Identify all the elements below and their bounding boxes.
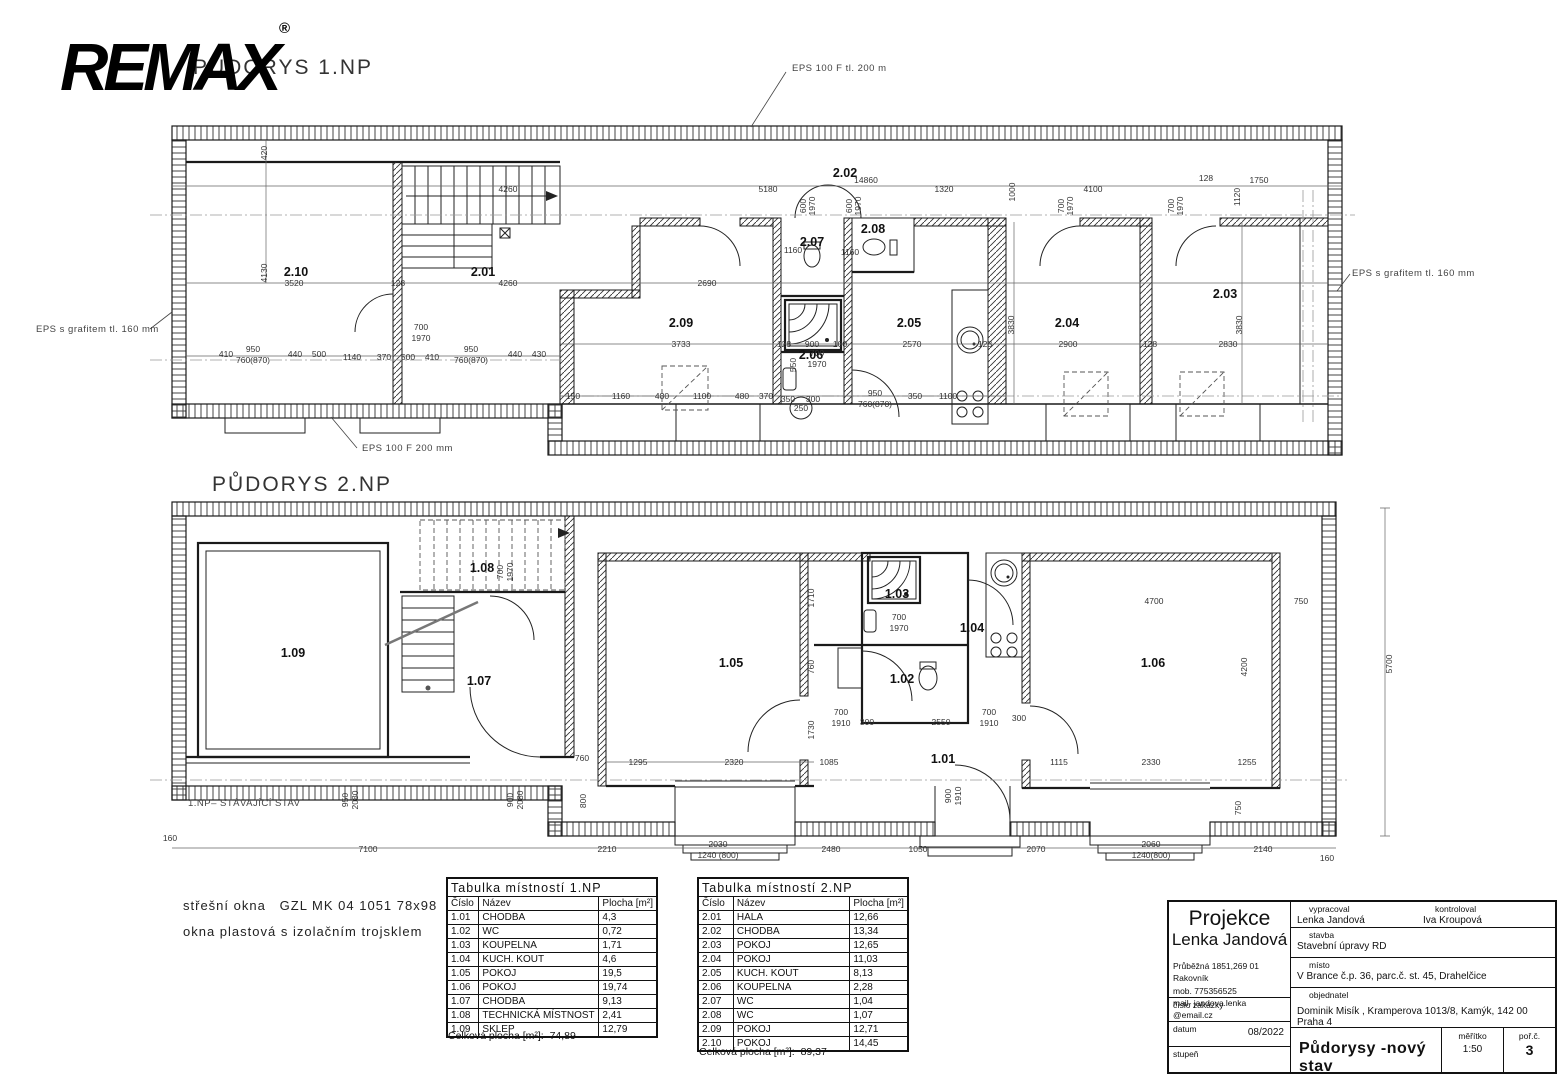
room-label-2-09: 2.09 (669, 316, 693, 330)
checked-by: Iva Kroupová (1423, 914, 1549, 926)
table1-title: Tabulka místností 1.NP (447, 878, 657, 897)
dimension-label: 700 (892, 612, 906, 622)
title-block-company: Projekce Lenka Jandová Průběžná 1851,269… (1169, 902, 1291, 1072)
col-header-name: Název (479, 897, 599, 911)
dimension-label: 1100 (693, 391, 712, 401)
dimension-label: 1970 (808, 359, 827, 369)
table-row: 2.04POKOJ11,03 (698, 953, 908, 967)
client-value: Dominik Misík , Kramperova 1013/8, Kamýk… (1297, 1000, 1549, 1028)
dimension-label: 2140 (1254, 844, 1273, 854)
callout-eps-left: EPS s grafitem tl. 160 mm (36, 324, 159, 335)
dimension-label: 1750 (1250, 175, 1269, 185)
table-row: 1.03KOUPELNA1,71 (447, 939, 657, 953)
dimension-label: 750 (1233, 801, 1243, 815)
dimension-label: 500 (401, 352, 415, 362)
dimension-label: 2480 (822, 844, 841, 854)
dimension-label: 760 (806, 660, 816, 674)
company-address: Průběžná 1851,269 01 Rakovník (1173, 960, 1286, 985)
dimension-label: 160 (163, 833, 177, 843)
dimension-label: 1160 (841, 247, 860, 257)
dimension-label: 1910 (953, 786, 963, 805)
prepared-label: vypracoval (1297, 904, 1423, 914)
room-label-2-04: 2.04 (1055, 316, 1079, 330)
table-row: 1.08TECHNICKÁ MÍSTNOST2,41 (447, 1009, 657, 1023)
sheet-number-value: 3 (1504, 1041, 1555, 1058)
scale-value: 1:50 (1442, 1041, 1503, 1055)
dimension-label: 760(870) (454, 355, 488, 365)
dimension-label: 1970 (1065, 196, 1075, 215)
plan2-title: PŮDORYS 2.NP (212, 473, 392, 497)
room-label-1-07: 1.07 (467, 674, 491, 688)
dimension-label: 2690 (698, 278, 717, 288)
dimension-label: 370 (377, 352, 391, 362)
table-row: 2.06KOUPELNA2,28 (698, 981, 908, 995)
floor-plan-bottom: 1.091.081.071.051.031.021.041.011.061.NP… (150, 502, 1394, 863)
dimension-label: 1115 (1050, 757, 1068, 767)
interior-walls (186, 162, 1328, 441)
sheet-number-cell: poř.č. 3 (1503, 1028, 1555, 1072)
dimension-label: 4200 (1239, 657, 1249, 676)
dimension-label: 2570 (903, 339, 922, 349)
col-header-number: Číslo (447, 897, 479, 911)
grade-row: stupeň (1169, 1046, 1290, 1072)
room-label-1-03: 1.03 (885, 587, 909, 601)
plan1-labels: 2.102.012.022.092.072.082.052.062.042.03… (36, 63, 1475, 454)
dimension-label: 1710 (806, 588, 816, 607)
dimension-label: 1140 (343, 352, 362, 362)
drawing-sheet: PŮDORYS 1.NP REMAX® PŮDORYS 2.NP .w2{str… (0, 0, 1568, 1080)
company-phone: mob. 775356525 (1173, 985, 1286, 997)
note-line1: střešní okna GZL MK 04 1051 78x98 (183, 898, 437, 913)
dimension-label: 1120 (1232, 188, 1242, 207)
room-label-2-05: 2.05 (897, 316, 921, 330)
company-name-line1: Projekce (1169, 907, 1290, 930)
company-contact: Průběžná 1851,269 01 Rakovník mob. 77535… (1169, 957, 1290, 997)
client-row: objednatel Dominik Misík , Kramperova 10… (1291, 988, 1555, 1028)
dimension-label: 900 (505, 793, 515, 807)
order-number-row: číslo zakázky (1169, 997, 1290, 1021)
dimension-label: 760(870) (236, 355, 270, 365)
date-row: datum08/2022 (1169, 1021, 1290, 1046)
dimension-label: 128 (777, 339, 791, 349)
dimension-label: 3830 (1234, 315, 1244, 334)
dimension-label: 350 (908, 391, 922, 401)
dimension-label: 1970 (853, 196, 863, 215)
place-value: V Brance č.p. 36, parc.č. st. 45, Drahel… (1297, 970, 1549, 982)
dimension-label: 1910 (832, 718, 851, 728)
dimension-label: 700 (414, 322, 428, 332)
registered-mark-icon: ® (279, 20, 290, 37)
window-notes: střešní okna GZL MK 04 1051 78x98okna pl… (183, 893, 437, 945)
building-value: Stavební úpravy RD (1297, 940, 1549, 952)
dimension-label: 4260 (499, 278, 518, 288)
outer-walls (172, 126, 1342, 455)
dimension-label: 480 (655, 391, 669, 401)
table1-total: Celková plocha [m²]: 74,89 (448, 1030, 576, 1042)
dimension-label: 128 (1199, 173, 1213, 183)
remax-logo: REMAX® (60, 34, 288, 101)
drawing-title: Půdorysy -nový stav (1291, 1028, 1441, 1072)
dimension-label: 3520 (285, 278, 304, 288)
dimension-label: 1240(800) (1132, 850, 1171, 860)
dimension-label: 1085 (820, 757, 839, 767)
dimension-label: 1970 (505, 562, 515, 581)
dimension-label: 2320 (725, 757, 744, 767)
dimension-label: 350 (781, 394, 795, 404)
table-row: 1.01CHODBA4,3 (447, 911, 657, 925)
room-label-1-09: 1.09 (281, 646, 305, 660)
table-row: 1.07CHODBA9,13 (447, 995, 657, 1009)
dimension-label: 3830 (1006, 315, 1016, 334)
table-row: 2.05KUCH. KOUT8,13 (698, 967, 908, 981)
dimension-label: 420 (259, 146, 269, 160)
dimension-label: 700 (810, 348, 824, 358)
dimension-label: 2060 (1142, 839, 1161, 849)
room-label-1-06: 1.06 (1141, 656, 1165, 670)
col-header-area: Plocha [m²] (599, 897, 657, 911)
dimension-label: 1100 (939, 391, 958, 401)
table-row: 2.03POKOJ12,65 (698, 939, 908, 953)
dimension-label: 1730 (806, 720, 816, 739)
dimension-label: 2550 (932, 717, 951, 727)
dimension-label: 1255 (1238, 757, 1257, 767)
dimension-label: 300 (860, 717, 874, 727)
company-name-line2: Lenka Jandová (1169, 930, 1290, 950)
staircase-top-plan (402, 166, 560, 268)
table2-title: Tabulka místností 2.NP (698, 878, 908, 897)
building-row: stavba Stavební úpravy RD (1291, 928, 1555, 958)
staircase-bottom-plan (385, 520, 570, 692)
drawing-title-row: Půdorysy -nový stav měřítko 1:50 poř.č. … (1291, 1028, 1555, 1072)
scale-cell: měřítko 1:50 (1441, 1028, 1503, 1072)
dimension-label: 1910 (980, 718, 999, 728)
dimension-label: 1970 (412, 333, 431, 343)
dimension-label: 370 (759, 391, 773, 401)
table-row: 2.07WC1,04 (698, 995, 908, 1009)
date-value: 08/2022 (1248, 1027, 1284, 1038)
dimension-label: 14860 (854, 175, 878, 185)
title-block-details: vypracoval Lenka Jandová kontroloval Iva… (1291, 902, 1555, 1072)
room-label-2-03: 2.03 (1213, 287, 1237, 301)
dimension-label: 2070 (1027, 844, 1046, 854)
dimension-label: 760(870) (858, 399, 892, 409)
dimension-label: 950 (464, 344, 478, 354)
dimension-label: 250 (794, 403, 808, 413)
dimension-label: 3733 (672, 339, 691, 349)
dimension-label: 160 (1320, 853, 1334, 863)
plan2-labels: 1.091.081.071.051.031.021.041.011.061.NP… (163, 561, 1394, 863)
dimension-label: 2830 (1219, 339, 1238, 349)
dimension-label: 300 (1012, 713, 1026, 723)
dimension-label: 1160 (612, 391, 631, 401)
room-label-2-01: 2.01 (471, 265, 495, 279)
dimension-label: 800 (578, 794, 588, 808)
col-header-name: Název (733, 897, 849, 911)
toilet-icon (863, 239, 885, 255)
table-row: 1.04KUCH. KOUT4,6 (447, 953, 657, 967)
dimension-label: 410 (219, 349, 233, 359)
dimension-label: 4130 (259, 263, 269, 282)
sink-icon (864, 610, 876, 632)
porch-step (225, 418, 305, 433)
porch-step (360, 418, 440, 433)
dimension-label: 1050 (909, 844, 928, 854)
room-label-1-05: 1.05 (719, 656, 743, 670)
table-row: 2.01HALA12,66 (698, 911, 908, 925)
dimension-label: 2030 (709, 839, 728, 849)
room-table-2np: Tabulka místností 2.NP Číslo Název Ploch… (697, 877, 909, 1052)
dimension-label: 480 (735, 391, 749, 401)
dimension-label: 2080 (350, 790, 360, 809)
dimension-label: 1970 (890, 623, 909, 633)
dimension-label: 1160 (784, 245, 803, 255)
dimension-label: 1970 (1175, 196, 1185, 215)
prepared-by: Lenka Jandová (1297, 914, 1423, 926)
dimension-label: 4700 (1145, 596, 1164, 606)
stove-icon (991, 633, 1001, 643)
room-label-2-08: 2.08 (861, 222, 885, 236)
dimension-label: 700 (834, 707, 848, 717)
door-arcs (470, 580, 1078, 820)
dimension-label: 900 (943, 789, 953, 803)
dimension-label: 5700 (1384, 654, 1394, 673)
dimension-label: 430 (532, 349, 546, 359)
room-label-2-10: 2.10 (284, 265, 308, 279)
table-row: 2.08WC1,07 (698, 1009, 908, 1023)
dimension-label: 300 (806, 394, 820, 404)
table-row: 1.05POKOJ19,5 (447, 967, 657, 981)
floor-plan-top: 2.102.012.022.092.072.082.052.062.042.03… (36, 63, 1475, 455)
dimension-label: 1320 (935, 184, 954, 194)
dimension-label: 1000 (1007, 182, 1017, 201)
dimension-label: 5180 (759, 184, 778, 194)
dimension-label: 700 (982, 707, 996, 717)
table-row: 2.02CHODBA13,34 (698, 925, 908, 939)
dimension-label: 1970 (807, 196, 817, 215)
col-header-area: Plocha [m²] (850, 897, 908, 911)
room-label-1-01: 1.01 (931, 752, 955, 766)
room-label-1-04: 1.04 (960, 621, 984, 635)
room-label-2-07: 2.07 (800, 235, 824, 249)
dimension-label: 4100 (1084, 184, 1103, 194)
dimension-label: 128 (391, 278, 405, 288)
dimension-label: 750 (1294, 596, 1308, 606)
room-label-1-08: 1.08 (470, 561, 494, 575)
table-row: 1.02WC0,72 (447, 925, 657, 939)
table-row: 2.09POKOJ12,71 (698, 1023, 908, 1037)
dimension-label: 150 (566, 391, 580, 401)
dimension-label: 128 (978, 339, 992, 349)
table-row: 1.06POKOJ19,74 (447, 981, 657, 995)
dimension-label: 1295 (629, 757, 648, 767)
table2-total: Celková plocha [m²]: 89,37 (699, 1046, 827, 1058)
place-row: místo V Brance č.p. 36, parc.č. st. 45, … (1291, 958, 1555, 988)
dimension-label: 2080 (515, 790, 525, 809)
title-block: Projekce Lenka Jandová Průběžná 1851,269… (1167, 900, 1557, 1074)
dimension-label: 550 (788, 358, 798, 372)
dimension-label: 2330 (1142, 757, 1161, 767)
dimension-label: 950 (868, 388, 882, 398)
axis-lines (150, 140, 1355, 425)
dimension-label: 7100 (359, 844, 378, 854)
room-label-1-02: 1.02 (890, 672, 914, 686)
dimension-label: 128 (1143, 339, 1157, 349)
checked-label: kontroloval (1423, 904, 1549, 914)
toilet-icon (919, 666, 937, 690)
dimension-label: 760 (575, 753, 589, 763)
dimension-label: 1240 (800) (697, 850, 738, 860)
dimension-label: 4260 (499, 184, 518, 194)
dimension-label: 410 (425, 352, 439, 362)
col-header-number: Číslo (698, 897, 733, 911)
dimension-label: 2210 (598, 844, 617, 854)
callout-eps-bottom: EPS 100 F 200 mm (362, 443, 453, 454)
callout-eps-top: EPS 100 F tl. 200 m (792, 63, 887, 74)
dimension-label: 950 (340, 793, 350, 807)
dimension-label: 2900 (1059, 339, 1078, 349)
room-table-1np: Tabulka místností 1.NP Číslo Název Ploch… (446, 877, 658, 1038)
callout-eps-right: EPS s grafitem tl. 160 mm (1352, 268, 1475, 279)
note-line2: okna plastová s izolačním trojsklem (183, 924, 422, 939)
dimension-label: 440 (508, 349, 522, 359)
authors-row: vypracoval Lenka Jandová kontroloval Iva… (1291, 902, 1555, 928)
dimension-label: 500 (312, 349, 326, 359)
dimension-label: 950 (246, 344, 260, 354)
dimension-label: 100 (833, 339, 847, 349)
existing-state-label: 1.NP– STÁVAJÍCÍ STAV (188, 798, 301, 809)
dimension-label: 700 (495, 565, 505, 579)
bathroom-fixtures (864, 553, 1022, 690)
dimension-label: 440 (288, 349, 302, 359)
